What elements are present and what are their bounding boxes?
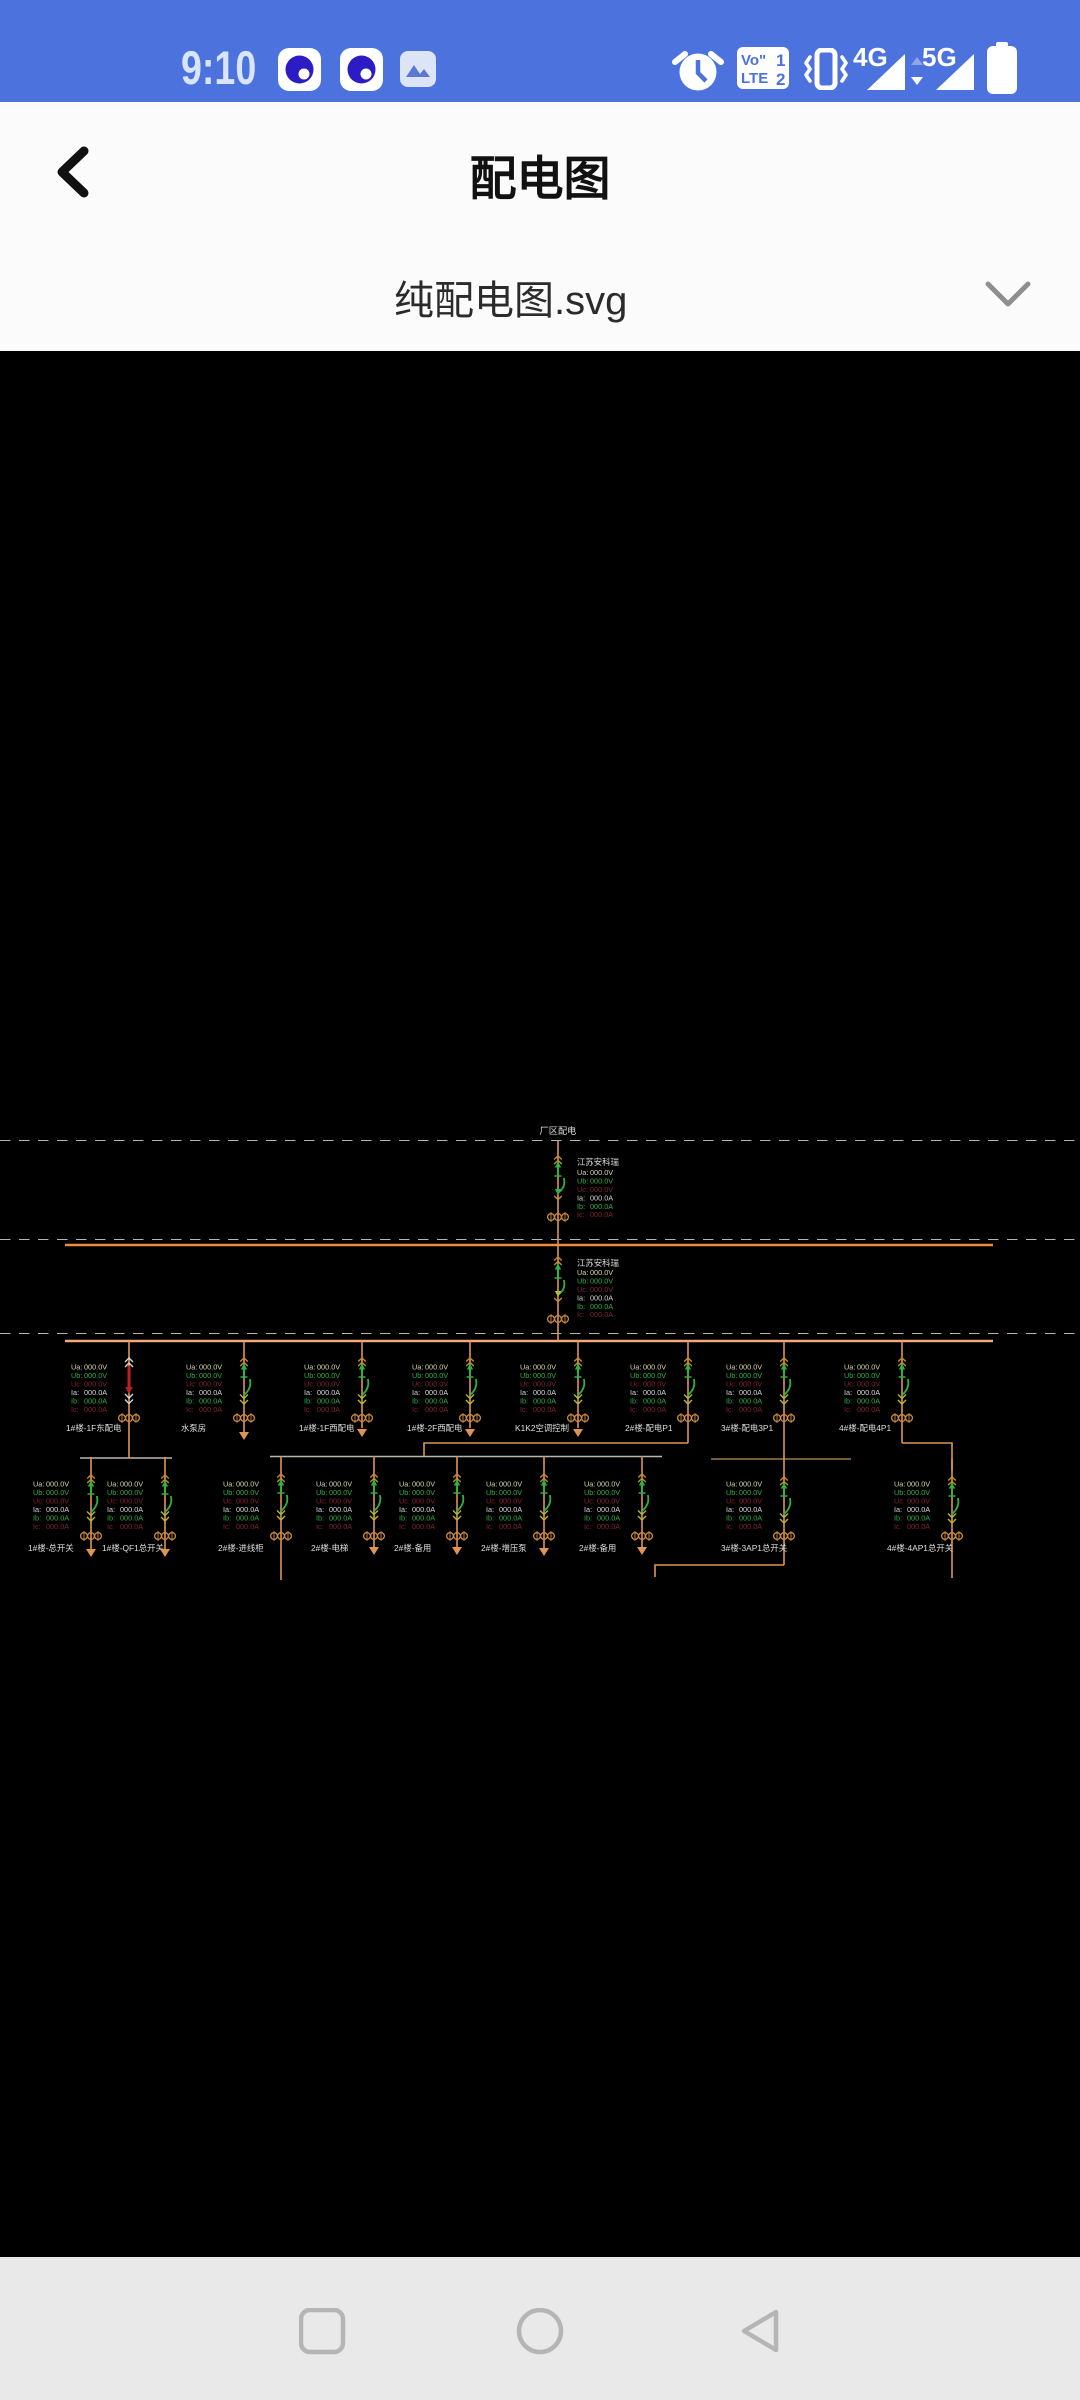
svg-text:Ic:: Ic: xyxy=(726,1522,734,1531)
svg-text:4#楼-4AP1总开关: 4#楼-4AP1总开关 xyxy=(887,1543,954,1553)
svg-text:Ic:: Ic: xyxy=(412,1405,420,1414)
svg-text:000.0A: 000.0A xyxy=(739,1522,762,1531)
svg-text:000.0A: 000.0A xyxy=(46,1522,69,1531)
svg-text:Ic:: Ic: xyxy=(186,1405,194,1414)
svg-text:江苏安科瑞: 江苏安科瑞 xyxy=(577,1157,619,1167)
svg-text:水泵房: 水泵房 xyxy=(181,1423,206,1433)
svg-text:000.0A: 000.0A xyxy=(590,1310,613,1319)
svg-text:Ic:: Ic: xyxy=(577,1210,585,1219)
svg-text:000.0A: 000.0A xyxy=(199,1405,222,1414)
svg-text:Ic:: Ic: xyxy=(223,1522,231,1531)
svg-text:5G: 5G xyxy=(922,42,957,72)
svg-text:000.0A: 000.0A xyxy=(120,1522,143,1531)
svg-text:Ic:: Ic: xyxy=(33,1522,41,1531)
svg-text:LTE: LTE xyxy=(741,70,768,87)
svg-text:Ic:: Ic: xyxy=(304,1405,312,1414)
svg-text:Ic:: Ic: xyxy=(399,1522,407,1531)
svg-text:4G: 4G xyxy=(853,42,888,72)
svg-text:1#楼-QF1总开关: 1#楼-QF1总开关 xyxy=(102,1543,165,1553)
svg-text:000.0A: 000.0A xyxy=(533,1405,556,1414)
svg-text:Ic:: Ic: xyxy=(486,1522,494,1531)
svg-text:4#楼-配电4P1: 4#楼-配电4P1 xyxy=(839,1423,891,1433)
svg-text:3#楼-配电3P1: 3#楼-配电3P1 xyxy=(721,1423,773,1433)
svg-text:Ic:: Ic: xyxy=(844,1405,852,1414)
svg-text:2#楼-电梯: 2#楼-电梯 xyxy=(311,1543,348,1553)
svg-text:000.0A: 000.0A xyxy=(317,1405,340,1414)
svg-text:2#楼-增压泵: 2#楼-增压泵 xyxy=(481,1543,527,1553)
svg-text:000.0A: 000.0A xyxy=(590,1210,613,1219)
svg-text:000.0A: 000.0A xyxy=(84,1405,107,1414)
svg-text:3#楼-3AP1总开关: 3#楼-3AP1总开关 xyxy=(721,1543,788,1553)
svg-text:Ic:: Ic: xyxy=(520,1405,528,1414)
svg-text:2: 2 xyxy=(776,70,785,89)
svg-text:000.0A: 000.0A xyxy=(236,1522,259,1531)
svg-text:000.0A: 000.0A xyxy=(907,1522,930,1531)
svg-text:000.0A: 000.0A xyxy=(425,1405,448,1414)
svg-text:Ic:: Ic: xyxy=(107,1522,115,1531)
svg-text:1: 1 xyxy=(776,51,785,70)
svg-text:厂区配电: 厂区配电 xyxy=(540,1125,577,1136)
svg-text:1#楼-1F西配电: 1#楼-1F西配电 xyxy=(299,1423,355,1433)
svg-text:000.0A: 000.0A xyxy=(597,1522,620,1531)
svg-text:Ic:: Ic: xyxy=(894,1522,902,1531)
svg-text:K1K2空调控制: K1K2空调控制 xyxy=(515,1423,569,1433)
svg-text:000.0A: 000.0A xyxy=(739,1405,762,1414)
svg-text:Ic:: Ic: xyxy=(316,1522,324,1531)
svg-text:2#楼-备用: 2#楼-备用 xyxy=(579,1543,616,1553)
svg-text:2#楼-配电P1: 2#楼-配电P1 xyxy=(625,1423,673,1433)
svg-text:2#楼-备用: 2#楼-备用 xyxy=(394,1543,431,1553)
svg-text:2#楼-进线柜: 2#楼-进线柜 xyxy=(218,1543,264,1553)
svg-text:1#楼-总开关: 1#楼-总开关 xyxy=(28,1543,74,1553)
svg-text:1#楼-2F西配电: 1#楼-2F西配电 xyxy=(407,1423,463,1433)
svg-text:Ic:: Ic: xyxy=(630,1405,638,1414)
svg-text:Ic:: Ic: xyxy=(71,1405,79,1414)
svg-text:Ic:: Ic: xyxy=(584,1522,592,1531)
svg-text:000.0A: 000.0A xyxy=(643,1405,666,1414)
svg-text:Ic:: Ic: xyxy=(577,1310,585,1319)
svg-text:1#楼-1F东配电: 1#楼-1F东配电 xyxy=(66,1423,122,1433)
svg-text:Ic:: Ic: xyxy=(726,1405,734,1414)
svg-text:Vo": Vo" xyxy=(741,52,766,69)
svg-text:000.0A: 000.0A xyxy=(857,1405,880,1414)
svg-text:000.0A: 000.0A xyxy=(329,1522,352,1531)
svg-text:江苏安科瑞: 江苏安科瑞 xyxy=(577,1258,619,1268)
svg-text:000.0A: 000.0A xyxy=(499,1522,522,1531)
svg-text:000.0A: 000.0A xyxy=(412,1522,435,1531)
